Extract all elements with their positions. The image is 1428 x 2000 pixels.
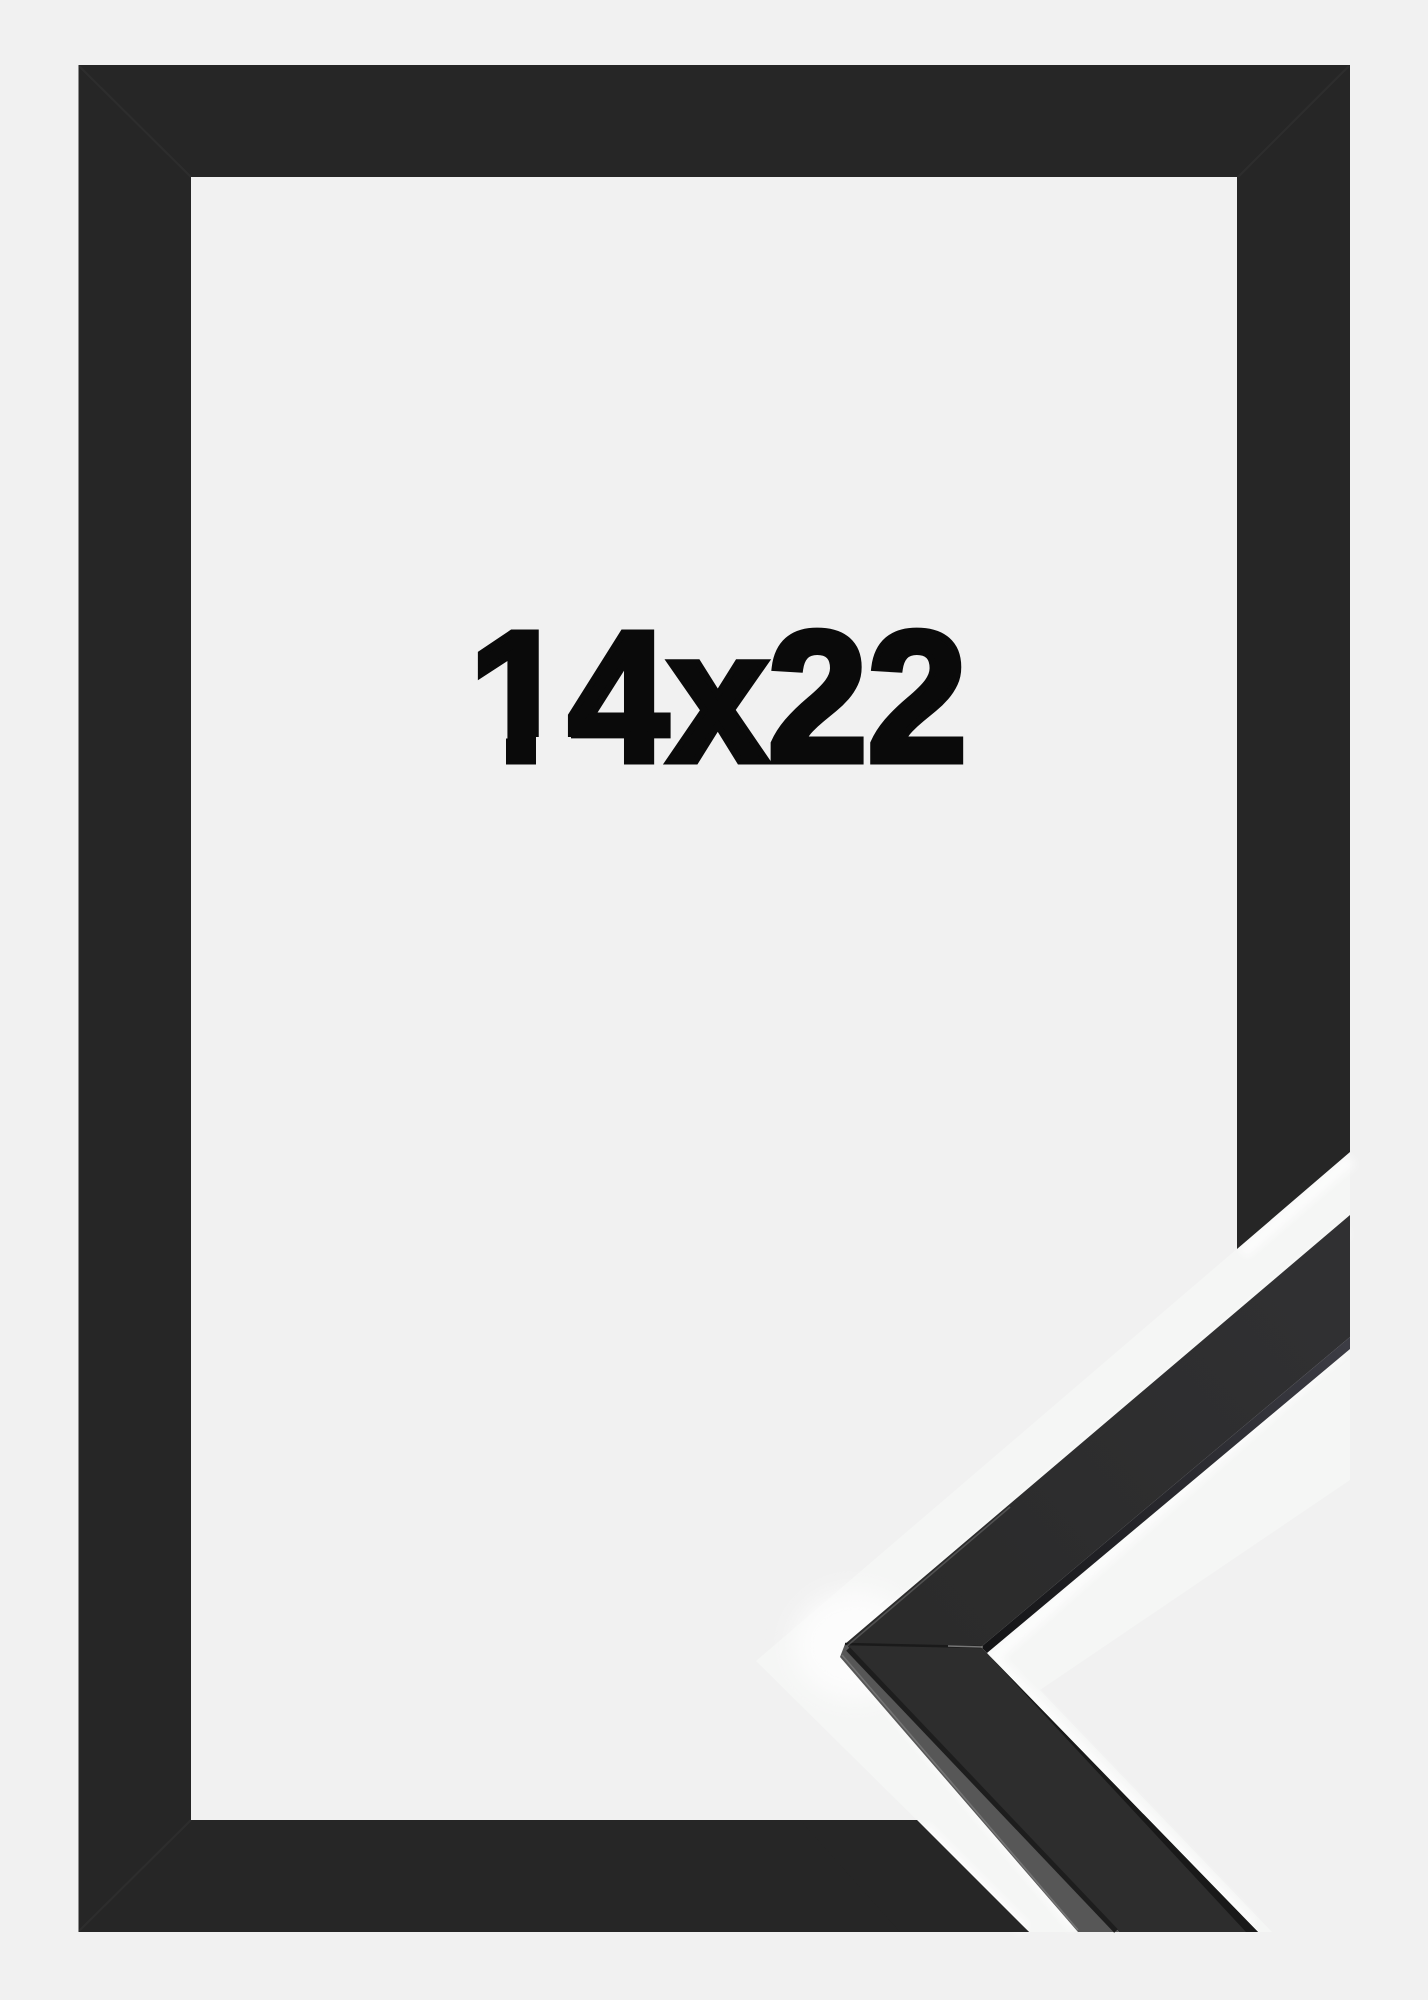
svg-text:14x22: 14x22 [469,594,967,801]
